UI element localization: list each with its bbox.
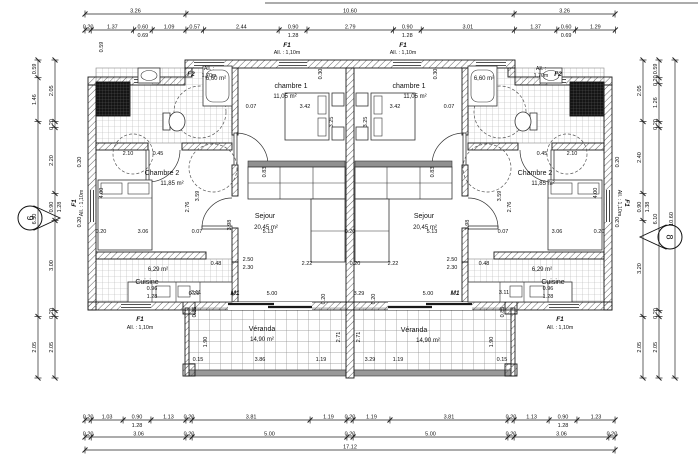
dark-shaft-right — [570, 82, 604, 116]
dim-label: 2.05 — [653, 342, 659, 353]
dim-chain-top-outer: 3.2610.603.26 — [83, 9, 618, 18]
dim-label: 1.13 — [163, 415, 174, 421]
dim-label: 0.20 — [184, 432, 195, 438]
dim-label: 2.05 — [637, 85, 643, 96]
floor-plan-drawing: chambre 1 11,05 m² chambre 1 11,05 m² Ch… — [0, 0, 700, 455]
room-label-sejour-right: Sejour — [414, 213, 435, 220]
bed-chambre1-left — [285, 93, 329, 140]
dim-label: 3.59 — [195, 191, 201, 202]
dim-label: 2.22 — [388, 261, 399, 267]
dim-label: 1.28 — [543, 294, 554, 300]
dim-label: 3.86 — [255, 357, 266, 363]
dim-label: 0.15 — [497, 357, 508, 363]
dim-label: 2.05 — [32, 342, 38, 353]
label-f2-left: F2 — [187, 71, 195, 78]
room-label-chambre1-right: chambre 1 — [392, 83, 425, 90]
label-f1-bottom-left: F1 — [136, 316, 144, 323]
room-area-cuisine-right: 6,29 m² — [532, 267, 552, 273]
label-f1-side-right: F1 — [623, 199, 630, 207]
dim-label: 3.06 — [552, 229, 563, 235]
wall-center — [346, 68, 354, 378]
wall-segment — [462, 165, 468, 196]
wall-segment — [185, 60, 515, 68]
dim-label: 2.20 — [49, 155, 55, 166]
room-label-veranda-left: Véranda — [249, 326, 276, 333]
dim-label: 2.76 — [507, 202, 513, 213]
dim-label: 0.59 — [32, 63, 38, 74]
dim-label: 0.90 — [288, 25, 299, 31]
dim-label: 3.20 — [637, 263, 643, 274]
dim-label: 3.29 — [354, 291, 365, 297]
dim-sublabel: 1.28 — [132, 423, 143, 429]
veranda-post — [505, 364, 517, 376]
dim-label: 1.19 — [316, 357, 327, 363]
dim-label: 1.37 — [107, 25, 118, 31]
label-f1-allege: All. : 1,10m — [390, 50, 417, 56]
label-f1-bottom-left-allege: All. : 1,10m — [127, 325, 154, 331]
section-number-right: 8 — [665, 234, 675, 239]
dim-label: 1.23 — [591, 415, 602, 421]
dim-sublabel: 1.28 — [288, 33, 299, 39]
dim-label: 0.20 — [653, 75, 659, 86]
room-label-chambre2-left: Chambre 2 — [145, 170, 180, 177]
room-area-chambre1-left: 11,05 m² — [273, 94, 296, 100]
dim-label: 0.20 — [506, 432, 517, 438]
label-f1-allege: All. : 1,10m — [274, 50, 301, 56]
dim-label: 0.85 — [192, 307, 198, 318]
dim-label: 0.20 — [615, 217, 621, 228]
dim-label: 1.09 — [164, 25, 175, 31]
room-label-cuisine-right: Cuisine — [541, 279, 564, 286]
label-f1-side-left-allege: All. : 1,10m — [79, 189, 85, 216]
dim-label: 2.50 — [447, 257, 458, 263]
dim-label: 0.20 — [607, 432, 618, 438]
nightstand — [356, 127, 368, 140]
dim-chain-bottom-detail: 0.201.030.901.281.130.203.811.190.201.19… — [83, 415, 618, 430]
dim-label: 0.90 — [49, 202, 55, 213]
dim-label: 1.19 — [323, 415, 334, 421]
dim-label: 3.98 — [227, 220, 233, 231]
dim-label: 0.20 — [350, 261, 361, 267]
dim-sublabel: 0.69 — [138, 33, 149, 39]
wall-segment — [96, 252, 206, 259]
door-swing — [468, 198, 498, 228]
dim-label: 0.45 — [537, 151, 548, 157]
room-label-cuisine-left: Cuisine — [135, 279, 158, 286]
dim-label: 0.59 — [99, 42, 105, 53]
dim-label: 3.06 — [556, 432, 567, 438]
window-f1-top-right — [393, 61, 421, 68]
dim-label: 3.06 — [133, 432, 144, 438]
dim-label: 0.20 — [77, 157, 83, 168]
dim-label: 0.07 — [498, 229, 509, 235]
dim-label: 1.28 — [147, 294, 158, 300]
dim-sublabel: 1.28 — [57, 202, 63, 213]
dim-label: 3.42 — [300, 104, 311, 110]
dim-label: 2.05 — [637, 342, 643, 353]
dim-label: 3.26 — [130, 9, 141, 15]
dim-label: 4.00 — [593, 188, 599, 199]
dim-label: 0.20 — [345, 229, 356, 235]
room-area-veranda-left: 14,90 m² — [250, 337, 274, 343]
dim-label: 3.11 — [499, 290, 509, 296]
bathtub — [203, 66, 232, 106]
dim-label: 0.20 — [371, 294, 377, 305]
sofa-chaise-right — [355, 199, 389, 262]
dim-label: 3.59 — [497, 191, 503, 202]
dim-label: 0.83 — [262, 167, 268, 178]
dim-label: 0.90 — [637, 202, 643, 213]
room-area-chambre2-right: 11,85 m² — [531, 181, 554, 187]
dim-label: 2.22 — [302, 261, 313, 267]
dim-sublabel: 1.28 — [558, 423, 569, 429]
wall-segment — [96, 143, 148, 150]
dim-sublabel: 1.28 — [402, 33, 413, 39]
wall-segment — [494, 252, 604, 259]
dim-label: 0.48 — [479, 261, 490, 267]
section-marker-right: 8 — [640, 225, 682, 249]
dim-label: 1.03 — [102, 415, 113, 421]
nightstand — [356, 93, 368, 106]
dim-label: 5.00 — [267, 291, 278, 297]
dim-label: 3.29 — [365, 357, 376, 363]
door-leaf — [551, 150, 554, 182]
wall-segment — [232, 228, 238, 262]
dim-label: 1.90 — [489, 337, 495, 348]
dim-label: 0.20 — [83, 432, 94, 438]
dim-label: 2.79 — [345, 25, 356, 31]
floor-plan-sheet: chambre 1 11,05 m² chambre 1 11,05 m² Ch… — [0, 0, 700, 455]
wall-segment — [468, 143, 518, 150]
dim-label: 3.98 — [465, 220, 471, 231]
bed-chambre2-left — [98, 180, 152, 250]
dim-label: 2.30 — [447, 265, 458, 271]
dim-label: 5.00 — [264, 432, 275, 438]
room-area-cuisine-left: 6,29 m² — [148, 267, 168, 273]
dim-label: 0.60 — [561, 25, 572, 31]
nightstand — [332, 127, 344, 140]
dim-label: 0.85 — [500, 307, 506, 318]
dim-label: 1.37 — [530, 25, 541, 31]
sofa-chaise-left — [311, 199, 345, 262]
dim-label: 0.20 — [83, 415, 94, 421]
dim-label: 0.20 — [83, 25, 94, 31]
dim-label: 2.71 — [356, 332, 362, 343]
door-leaf — [146, 150, 149, 182]
dim-label: 2.44 — [236, 25, 247, 31]
dim-label: 0.29 — [189, 291, 200, 297]
wall-segment — [462, 262, 468, 302]
room-area-chambre2-left: 11,85 m² — [160, 181, 183, 187]
dim-label: 0.48 — [211, 261, 222, 267]
dim-label: 0.20 — [615, 157, 621, 168]
room-area-chambre1-right: 11,05 m² — [403, 94, 426, 100]
window-f1-side-right — [605, 190, 612, 222]
window-f1-bottom-right — [549, 303, 579, 310]
dim-label: 0.45 — [153, 151, 164, 157]
dim-label: 3.26 — [559, 9, 570, 15]
dim-label: 3.81 — [246, 415, 257, 421]
label-f1-top-right: F1 — [399, 42, 407, 49]
label-m1-right: M1 — [450, 290, 459, 297]
dim-label: 0.20 — [506, 415, 517, 421]
dim-label: 5.13 — [427, 229, 438, 235]
dim-label: 1.19 — [393, 357, 404, 363]
label-f1-side-left: F1 — [71, 199, 78, 207]
dim-label: 0.96 — [147, 286, 158, 292]
dim-label: 0.20 — [77, 217, 83, 228]
dim-label: 0.20 — [594, 229, 605, 235]
dim-label: 2.50 — [243, 257, 254, 263]
dim-label: 10.60 — [343, 9, 357, 15]
dim-label: 5.00 — [423, 291, 434, 297]
dim-label: 2.05 — [49, 85, 55, 96]
dim-label: 0.07 — [444, 104, 455, 110]
dim-label: 3.81 — [444, 415, 455, 421]
dim-label: 1.90 — [203, 337, 209, 348]
label-f2-allege1: All. : — [204, 66, 214, 72]
dim-label: 6.50 — [32, 214, 38, 225]
dim-label: 2.30 — [243, 265, 254, 271]
dim-label: 6.10 — [653, 214, 659, 225]
dim-label: 0.20 — [96, 229, 107, 235]
bed-chambre1-right — [371, 93, 415, 140]
dim-label: 0.20 — [184, 415, 195, 421]
dim-label: 0.83 — [430, 167, 436, 178]
dim-label: 0.07 — [192, 229, 203, 235]
dim-label: 0.07 — [246, 104, 257, 110]
veranda-threshold-left — [189, 370, 346, 376]
sliding-door-m1-right — [388, 302, 472, 310]
dim-label: 2.76 — [185, 202, 191, 213]
wall-segment — [508, 68, 515, 77]
label-f2-allege1: All. : — [536, 66, 546, 72]
dim-label: 3.01 — [462, 25, 473, 31]
wall-segment — [552, 143, 604, 150]
door-leaf — [468, 226, 498, 229]
dim-label: 2.05 — [49, 342, 55, 353]
dim-chain-right-outer: 10.60 — [669, 58, 679, 381]
label-f1-bottom-right: F1 — [556, 316, 564, 323]
dim-label: 3.25 — [363, 117, 369, 128]
room-area-veranda-right: 14,90 m² — [416, 338, 440, 344]
dim-label: 3.42 — [390, 104, 401, 110]
label-f1-side-right-allege: All. : 1,10m — [616, 190, 622, 217]
dim-chain-bottom-mid: 0.203.060.205.000.205.000.203.060.20 — [83, 432, 618, 441]
label-f2-allege2: 1,70m — [534, 73, 549, 79]
door-swing — [236, 133, 268, 165]
wall-segment — [462, 68, 468, 135]
dim-label: 1.26 — [653, 97, 659, 108]
room-label-chambre2-right: Chambre 2 — [518, 170, 553, 177]
dim-label: 5.13 — [263, 229, 274, 235]
dim-chain-right-mid: 0.590.201.260.206.100.202.05 — [653, 58, 663, 381]
dim-label: 1.13 — [526, 415, 537, 421]
label-f1-bottom-right-allege: All. : 1,10m — [547, 325, 574, 331]
dark-shaft-left — [96, 82, 130, 116]
veranda-post — [505, 302, 517, 314]
dim-label: 2.10 — [123, 151, 134, 157]
dim-label: 0.20 — [49, 308, 55, 319]
dim-label: 0.90 — [558, 415, 569, 421]
dim-label: 0.90 — [402, 25, 413, 31]
dim-label: 3.25 — [329, 117, 335, 128]
dim-label: 0.20 — [345, 432, 356, 438]
dim-label: 2.71 — [336, 332, 342, 343]
dim-label: 0.20 — [321, 294, 327, 305]
door-swing — [432, 133, 464, 165]
dim-label: 0.20 — [49, 119, 55, 130]
room-area-sdb-right: 6,60 m² — [474, 76, 494, 82]
wall-segment — [462, 228, 468, 262]
room-label-chambre1-left: chambre 1 — [274, 83, 307, 90]
dim-label: 0.20 — [653, 308, 659, 319]
dim-label: 1.46 — [32, 94, 38, 105]
sofa-back-left — [248, 161, 345, 167]
dim-label: 0.30 — [318, 69, 324, 80]
dim-label: 3.00 — [49, 260, 55, 271]
window-f1-side-left — [89, 190, 96, 222]
dim-label: 4.00 — [99, 188, 105, 199]
dim-chain-right-inner: 2.052.400.901.383.202.05 — [637, 58, 651, 381]
label-m1-left: M1 — [230, 290, 239, 297]
dim-label: 3.06 — [138, 229, 149, 235]
dim-label: 0.15 — [193, 357, 204, 363]
dim-label: 0.60 — [138, 25, 149, 31]
dim-label: 0.20 — [345, 415, 356, 421]
dim-chain-bottom-total: 17.12 — [83, 445, 618, 454]
veranda-threshold-right — [354, 370, 511, 376]
bathtub — [468, 66, 497, 106]
nightstand — [332, 93, 344, 106]
label-f2-right: F2 — [554, 71, 562, 78]
dim-label: 1.29 — [590, 25, 601, 31]
dim-label: 2.10 — [567, 151, 578, 157]
dim-label: 0.90 — [132, 415, 143, 421]
dim-chain-top-detail: 0.201.370.600.691.090.572.440.901.282.79… — [83, 25, 618, 40]
dim-sublabel: 1.38 — [645, 202, 651, 213]
sofa-back-right — [355, 161, 452, 167]
sliding-door-m1-left — [228, 302, 312, 310]
room-label-veranda-right: Véranda — [401, 327, 428, 334]
wall-segment — [182, 143, 232, 150]
dim-label: 0.59 — [653, 63, 659, 74]
dim-label: 0.96 — [543, 286, 554, 292]
dim-label: 0.57 — [189, 25, 200, 31]
veranda-post — [183, 364, 195, 376]
label-f1-top-left: F1 — [283, 42, 291, 49]
wall-segment — [232, 68, 238, 135]
dim-label: 0.30 — [433, 69, 439, 80]
window-f1-top-left — [279, 61, 307, 68]
dim-label: 17.12 — [343, 445, 357, 451]
dim-label: 0.20 — [653, 119, 659, 130]
dim-label: 5.00 — [425, 432, 436, 438]
dim-label: 10.60 — [669, 212, 675, 226]
label-f2-allege2: 1,70m — [202, 73, 217, 79]
window-f1-bottom-left — [121, 303, 151, 310]
dim-label: 1.19 — [366, 415, 377, 421]
dim-label: 2.40 — [637, 152, 643, 163]
dim-sublabel: 0.69 — [561, 33, 572, 39]
room-label-sejour-left: Sejour — [255, 213, 276, 220]
